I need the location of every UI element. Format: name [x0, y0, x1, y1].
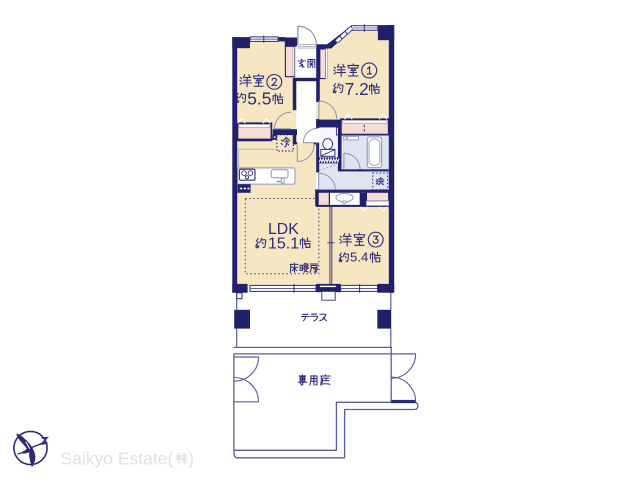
svg-text:7.2: 7.2 [345, 79, 369, 99]
svg-text:5.5: 5.5 [247, 89, 271, 109]
svg-text:15.1: 15.1 [268, 236, 299, 253]
svg-text:Saikyo Estate(: Saikyo Estate( [61, 449, 174, 469]
svg-text:): ) [188, 449, 194, 469]
svg-text:5.4: 5.4 [350, 250, 368, 265]
